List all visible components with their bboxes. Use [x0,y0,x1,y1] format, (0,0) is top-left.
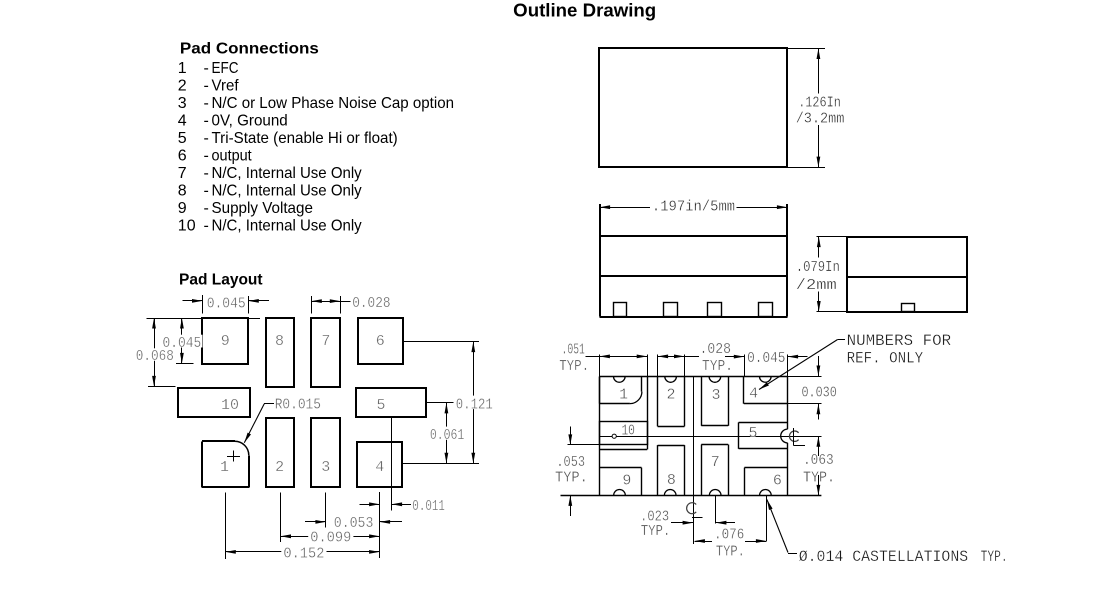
svg-text:.053: .053 [556,455,585,471]
svg-text:TYP.: TYP. [981,548,1008,566]
svg-text:TYP.: TYP. [803,470,835,486]
svg-text:9: 9 [221,333,230,350]
svg-text:.063: .063 [803,453,834,469]
svg-text:.023: .023 [640,509,669,525]
svg-text:TYP.: TYP. [641,524,671,540]
svg-text:0.045: 0.045 [207,296,246,312]
svg-text:2: 2 [666,386,675,403]
svg-text:7: 7 [711,454,720,471]
svg-text:0.030: 0.030 [802,386,837,402]
svg-text:4: 4 [749,385,758,402]
svg-text:.126In: .126In [798,96,841,112]
svg-text:9: 9 [622,473,631,490]
svg-text:0.121: 0.121 [456,398,493,414]
svg-text:TYP.: TYP. [559,359,589,375]
svg-text:3-N/C or Low Phase Noise Cap o: 3-N/C or Low Phase Noise Cap option [178,95,454,112]
svg-text:6-output: 6-output [178,148,252,165]
svg-text:REF. ONLY: REF. ONLY [847,350,924,368]
svg-text:2-Vref: 2-Vref [178,78,239,95]
svg-text:/2mm: /2mm [796,278,837,294]
svg-text:TYP.: TYP. [716,544,745,560]
svg-text:Pad Connections: Pad Connections [180,40,319,57]
svg-text:TYP.: TYP. [702,359,733,375]
svg-text:0.028: 0.028 [352,296,390,312]
svg-text:4: 4 [375,459,384,476]
svg-text:TYP.: TYP. [555,470,588,486]
svg-text:7: 7 [321,333,330,350]
svg-text:8: 8 [275,333,284,350]
svg-text:5: 5 [748,425,757,442]
svg-text:Pad Layout: Pad Layout [179,272,263,289]
svg-text:6: 6 [773,473,782,490]
svg-text:R0.015: R0.015 [275,397,321,413]
svg-text:3: 3 [711,387,720,404]
svg-text:/3.2mm: /3.2mm [796,112,845,128]
svg-text:0.099: 0.099 [310,531,351,547]
svg-text:1: 1 [220,459,229,476]
svg-text:0.045: 0.045 [162,336,201,352]
svg-text:8-N/C, Internal Use Only: 8-N/C, Internal Use Only [178,183,362,200]
svg-text:NUMBERS FOR: NUMBERS FOR [847,332,952,350]
svg-text:1-EFC: 1-EFC [178,60,239,77]
svg-text:.197in/5mm: .197in/5mm [652,199,735,215]
svg-text:6: 6 [376,333,385,350]
svg-text:.076: .076 [714,528,744,544]
svg-text:.079In: .079In [796,260,840,276]
svg-text:0.045: 0.045 [747,351,785,367]
svg-text:Outline Drawing: Outline Drawing [513,0,656,20]
svg-text:5-Tri-State (enable Hi or floa: 5-Tri-State (enable Hi or float) [178,130,398,147]
svg-text:10-N/C, Internal Use Only: 10-N/C, Internal Use Only [178,218,362,235]
svg-text:5: 5 [376,397,385,414]
svg-text:10: 10 [621,423,635,440]
svg-text:4-0V, Ground: 4-0V, Ground [178,113,288,130]
svg-text:0.061: 0.061 [430,428,465,444]
svg-text:1: 1 [619,386,628,403]
svg-text:8: 8 [667,472,676,489]
svg-text:10: 10 [221,397,239,414]
svg-text:3: 3 [321,459,330,476]
svg-text:7-N/C, Internal Use Only: 7-N/C, Internal Use Only [178,165,362,182]
svg-text:0.152: 0.152 [283,546,324,562]
svg-text:0.011: 0.011 [412,499,445,515]
svg-text:.051: .051 [562,343,586,359]
svg-text:9-Supply Voltage: 9-Supply Voltage [178,200,313,217]
svg-text:Ø.014 CASTELLATIONS: Ø.014 CASTELLATIONS [799,548,969,566]
svg-text:2: 2 [275,459,284,476]
svg-text:.028: .028 [700,342,732,358]
